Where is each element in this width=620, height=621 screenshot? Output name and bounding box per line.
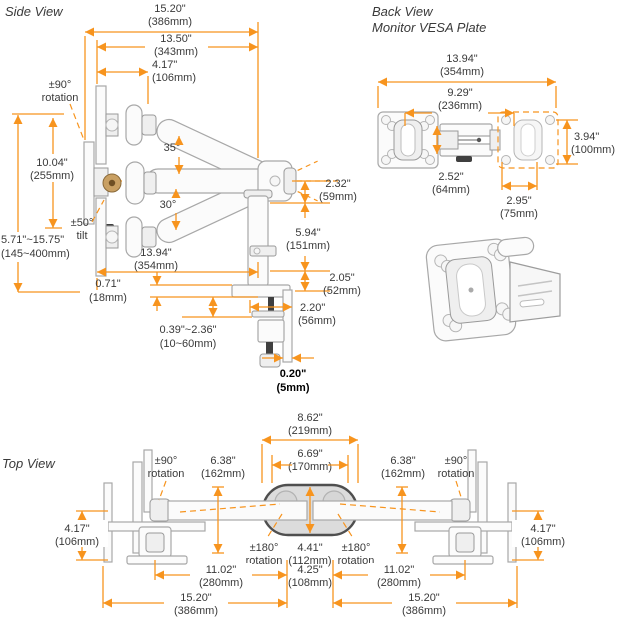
top-view-title: Top View (2, 456, 56, 471)
svg-text:4.25": 4.25" (297, 564, 322, 576)
svg-text:±180°: ±180° (250, 542, 279, 554)
svg-text:2.52": 2.52" (438, 171, 463, 183)
vesa-plate-dashed (498, 112, 558, 168)
svg-text:4.17": 4.17" (530, 523, 555, 535)
dim-top-6-69: 6.69" (170mm) (272, 448, 348, 483)
vesa-slider (438, 124, 500, 162)
svg-text:6.38": 6.38" (390, 455, 415, 467)
svg-text:rotation: rotation (42, 92, 79, 104)
svg-text:(52mm): (52mm) (323, 285, 361, 297)
svg-text:±180°: ±180° (342, 542, 371, 554)
back-view: Back View Monitor VESA Plate (372, 4, 615, 342)
svg-text:(108mm): (108mm) (288, 577, 332, 589)
vesa-plate-solid (378, 112, 438, 168)
svg-text:5.94": 5.94" (295, 227, 320, 239)
svg-text:0.39"~2.36": 0.39"~2.36" (159, 324, 216, 336)
svg-text:tilt: tilt (77, 230, 88, 242)
svg-text:(106mm): (106mm) (55, 536, 99, 548)
svg-text:2.95": 2.95" (506, 195, 531, 207)
svg-text:4.17": 4.17" (64, 523, 89, 535)
svg-text:±90°: ±90° (155, 455, 178, 467)
svg-text:(386mm): (386mm) (174, 605, 218, 617)
svg-text:(255mm): (255mm) (30, 170, 74, 182)
svg-text:30°: 30° (160, 199, 177, 211)
svg-text:(170mm): (170mm) (288, 461, 332, 473)
svg-text:4.41": 4.41" (297, 542, 322, 554)
svg-text:10.04": 10.04" (36, 157, 68, 169)
back-view-subtitle: Monitor VESA Plate (372, 20, 486, 35)
svg-text:9.29": 9.29" (447, 87, 472, 99)
monitor-arm-spec-drawing: Side View (0, 0, 620, 621)
svg-text:0.71": 0.71" (95, 278, 120, 290)
svg-text:(151mm): (151mm) (286, 240, 330, 252)
svg-text:(75mm): (75mm) (500, 208, 538, 220)
svg-text:3.94": 3.94" (574, 131, 599, 143)
svg-text:±90°: ±90° (49, 79, 72, 91)
svg-text:13.50": 13.50" (160, 33, 192, 45)
top-right-arm (313, 501, 452, 520)
svg-text:(236mm): (236mm) (438, 100, 482, 112)
angle-35: 35° (164, 136, 181, 174)
svg-text:2.32": 2.32" (325, 178, 350, 190)
svg-text:(59mm): (59mm) (319, 191, 357, 203)
dim-top-4-17-left: 4.17" (106mm) (48, 511, 108, 560)
svg-text:0.20": 0.20" (280, 368, 307, 380)
svg-text:(343mm): (343mm) (154, 46, 198, 58)
svg-text:(280mm): (280mm) (377, 577, 421, 589)
svg-text:(280mm): (280mm) (199, 577, 243, 589)
side-view-title: Side View (5, 4, 64, 19)
svg-text:±90°: ±90° (445, 455, 468, 467)
svg-text:11.02": 11.02" (206, 564, 237, 576)
svg-text:±50°: ±50° (71, 217, 94, 229)
svg-text:13.94": 13.94" (446, 53, 478, 65)
dim-side-10-04: 10.04" (255mm) (24, 118, 80, 228)
callout-rotation-90: ±90° rotation (42, 79, 84, 140)
svg-text:(10~60mm): (10~60mm) (160, 338, 217, 350)
svg-text:4.17": 4.17" (152, 59, 177, 71)
svg-text:(386mm): (386mm) (148, 16, 192, 28)
svg-text:(145~400mm): (145~400mm) (1, 248, 70, 260)
svg-text:rotation: rotation (148, 468, 185, 480)
svg-text:(106mm): (106mm) (521, 536, 565, 548)
dim-top-4-25: 4.25" (108mm) (287, 560, 333, 608)
svg-text:15.20": 15.20" (408, 592, 440, 604)
svg-text:15.20": 15.20" (180, 592, 212, 604)
side-view: Side View (0, 3, 361, 394)
svg-text:8.62": 8.62" (297, 412, 322, 424)
monitor-head-top (96, 86, 156, 164)
svg-text:(162mm): (162mm) (381, 468, 425, 480)
svg-text:6.38": 6.38" (210, 455, 235, 467)
svg-text:(354mm): (354mm) (134, 260, 178, 272)
svg-text:(354mm): (354mm) (440, 66, 484, 78)
svg-text:11.02": 11.02" (384, 564, 415, 576)
svg-text:(386mm): (386mm) (402, 605, 446, 617)
dim-side-2-05: 2.05" (52mm) (295, 271, 361, 297)
svg-text:2.05": 2.05" (329, 272, 354, 284)
vesa-plate-3d-render (425, 237, 560, 342)
svg-text:(162mm): (162mm) (201, 468, 245, 480)
svg-text:5.71"~15.75": 5.71"~15.75" (1, 234, 64, 246)
back-view-title: Back View (372, 4, 434, 19)
callout-top-rot90-left: ±90° rotation (148, 455, 185, 500)
svg-text:35°: 35° (164, 142, 181, 154)
dim-top-4-17-right: 4.17" (106mm) (512, 511, 574, 560)
svg-text:(18mm): (18mm) (89, 292, 127, 304)
dim-side-5-94: 5.94" (151mm) (270, 203, 330, 271)
dim-side-height-range: 5.71"~15.75" (145~400mm) (0, 114, 92, 292)
dim-side-13-94: 13.94" (354mm) (97, 247, 258, 290)
dim-side-4-17: 4.17" (106mm) (97, 59, 196, 104)
svg-text:(100mm): (100mm) (571, 144, 615, 156)
svg-text:rotation: rotation (438, 468, 475, 480)
top-view: Top View (2, 412, 574, 617)
svg-text:13.94": 13.94" (140, 247, 172, 259)
dim-side-clamp-range: 0.39"~2.36" (10~60mm) (159, 297, 252, 350)
dim-back-3-94: 3.94" (100mm) (556, 120, 615, 164)
svg-text:(5mm): (5mm) (276, 382, 309, 394)
svg-text:(219mm): (219mm) (288, 425, 332, 437)
svg-text:(64mm): (64mm) (432, 184, 470, 196)
svg-text:(56mm): (56mm) (298, 315, 336, 327)
svg-text:15.20": 15.20" (154, 3, 186, 15)
top-left-arm (168, 501, 307, 520)
dim-back-2-95: 2.95" (75mm) (500, 162, 538, 220)
svg-text:2.20": 2.20" (300, 302, 325, 314)
dimension-diagram: Side View (0, 0, 620, 621)
svg-text:(106mm): (106mm) (152, 72, 196, 84)
svg-text:6.69": 6.69" (297, 448, 322, 460)
